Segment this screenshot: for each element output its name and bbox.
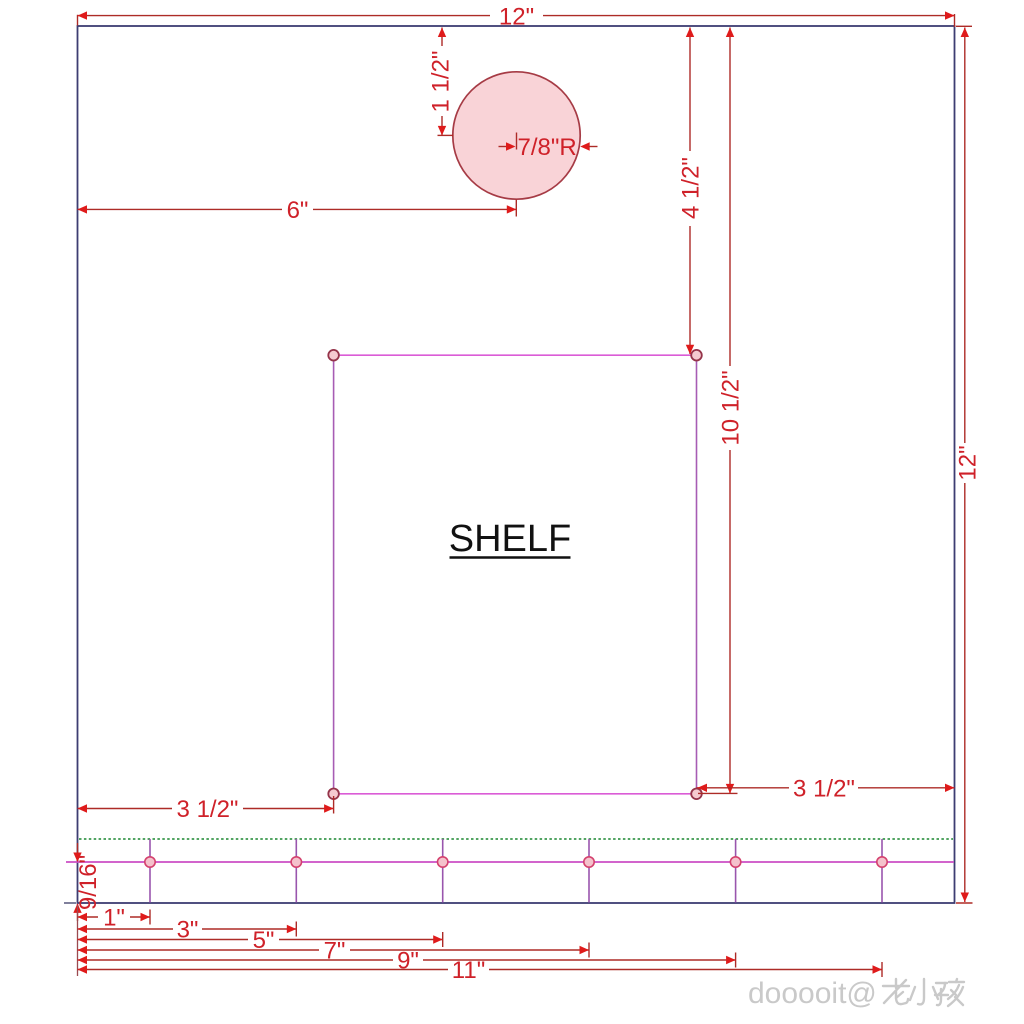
svg-text:dooooit@: dooooit@ [748,977,877,1010]
svg-text:9": 9" [397,948,419,975]
svg-text:6": 6" [287,197,309,224]
svg-text:3 1/2": 3 1/2" [177,796,239,823]
svg-text:1 1/2": 1 1/2" [428,51,455,113]
svg-text:11": 11" [452,957,485,984]
svg-text:7/8"R: 7/8"R [518,134,577,161]
svg-text:9/16": 9/16" [75,855,102,910]
svg-text:12": 12" [955,445,982,480]
svg-text:4 1/2": 4 1/2" [678,157,705,219]
svg-text:3 1/2": 3 1/2" [793,775,855,802]
svg-text:1": 1" [103,905,125,932]
svg-text:12": 12" [499,3,534,30]
svg-text:SHELF: SHELF [449,518,571,560]
svg-text:10 1/2": 10 1/2" [718,370,745,445]
